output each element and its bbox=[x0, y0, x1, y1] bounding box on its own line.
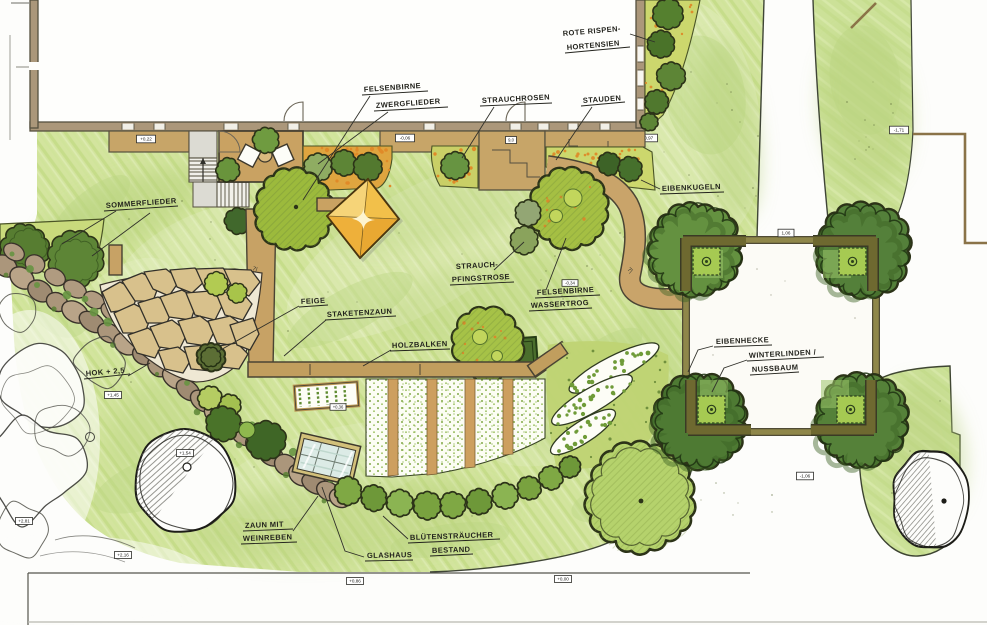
svg-text:+0,36: +0,36 bbox=[333, 405, 344, 410]
svg-text:ZAUN MIT: ZAUN MIT bbox=[245, 520, 284, 530]
svg-text:GLASHAUS: GLASHAUS bbox=[367, 550, 412, 560]
svg-text:9,0: 9,0 bbox=[508, 138, 514, 143]
svg-text:-0,06: -0,06 bbox=[400, 136, 411, 141]
svg-text:+1,45: +1,45 bbox=[107, 393, 119, 398]
svg-text:WEINREBEN: WEINREBEN bbox=[243, 532, 293, 543]
svg-text:-1,06: -1,06 bbox=[800, 474, 811, 479]
svg-text:1,06: 1,06 bbox=[782, 231, 791, 236]
svg-text:+0,00: +0,00 bbox=[557, 577, 569, 582]
svg-text:-0,34: -0,34 bbox=[565, 281, 575, 286]
svg-text:+2,81: +2,81 bbox=[18, 519, 30, 524]
svg-text:+0,22: +0,22 bbox=[140, 137, 152, 142]
svg-text:BESTAND: BESTAND bbox=[432, 545, 471, 555]
svg-text:-1,71: -1,71 bbox=[894, 128, 905, 133]
svg-text:EIBENHECKE: EIBENHECKE bbox=[716, 335, 769, 346]
svg-text:+0,86: +0,86 bbox=[349, 579, 361, 584]
svg-text:+2,16: +2,16 bbox=[117, 553, 129, 558]
svg-text:FEIGE: FEIGE bbox=[301, 296, 326, 306]
svg-text:+1,54: +1,54 bbox=[179, 451, 191, 456]
